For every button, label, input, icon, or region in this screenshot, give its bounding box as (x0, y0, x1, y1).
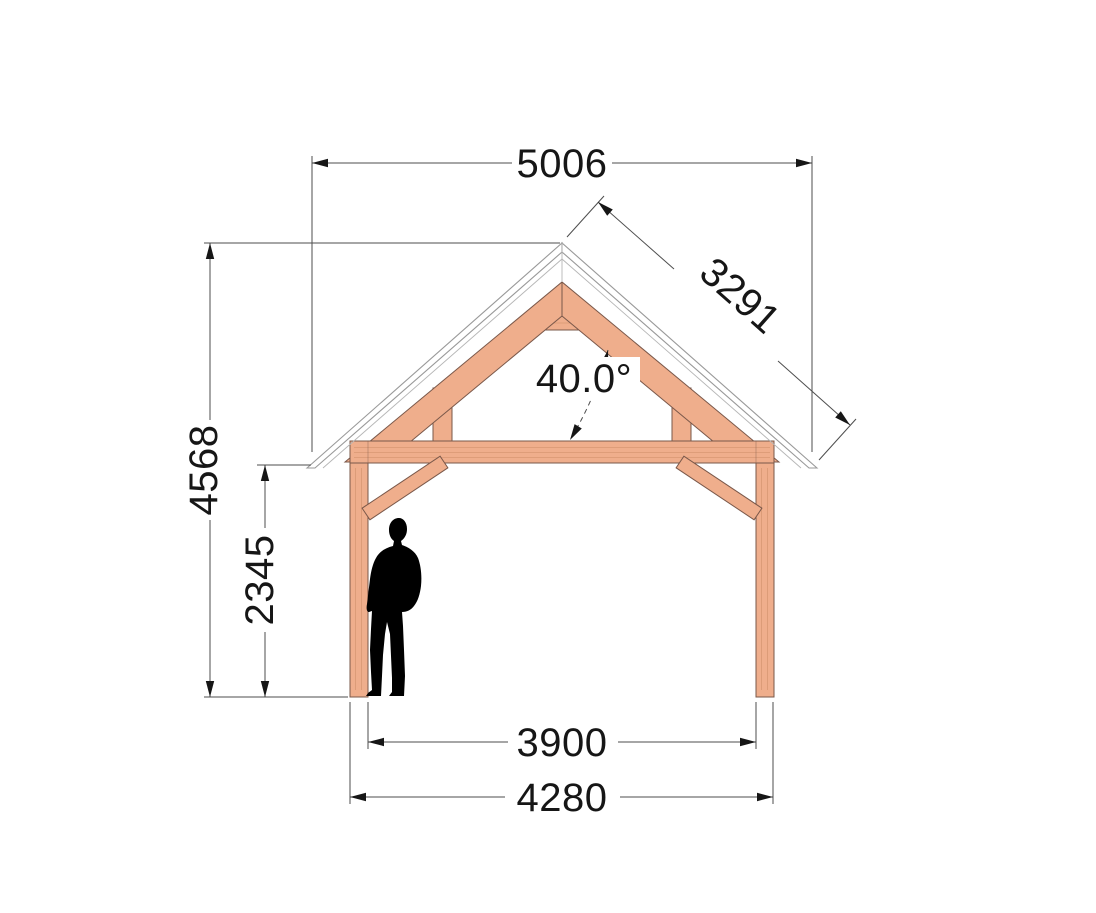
knee-brace-left (362, 456, 448, 520)
person-silhouette (366, 518, 421, 696)
knee-brace-right (676, 456, 762, 520)
inner-span-label: 3900 (517, 721, 608, 765)
rafter-length-label: 3291 (691, 249, 788, 342)
post-left (350, 463, 368, 697)
clearance-height-label: 2345 (238, 535, 282, 626)
dimension-inner-span: 3900 (368, 702, 756, 765)
tie-beam (350, 441, 774, 463)
dimension-clearance-height: 2345 (238, 465, 311, 697)
outer-span-label: 4280 (517, 776, 608, 820)
dimension-roof-angle: 40.0° (528, 350, 640, 440)
dimension-total-height: 4568 (182, 243, 560, 697)
timber-frame-elevation-drawing: 5006 3291 40.0° 4568 2345 (0, 0, 1096, 913)
roof-angle-label: 40.0° (536, 357, 632, 401)
total-height-label: 4568 (182, 425, 226, 516)
post-right (756, 463, 774, 697)
construction-drawing-page: 5006 3291 40.0° 4568 2345 (0, 0, 1096, 913)
roof-width-label: 5006 (517, 142, 608, 186)
